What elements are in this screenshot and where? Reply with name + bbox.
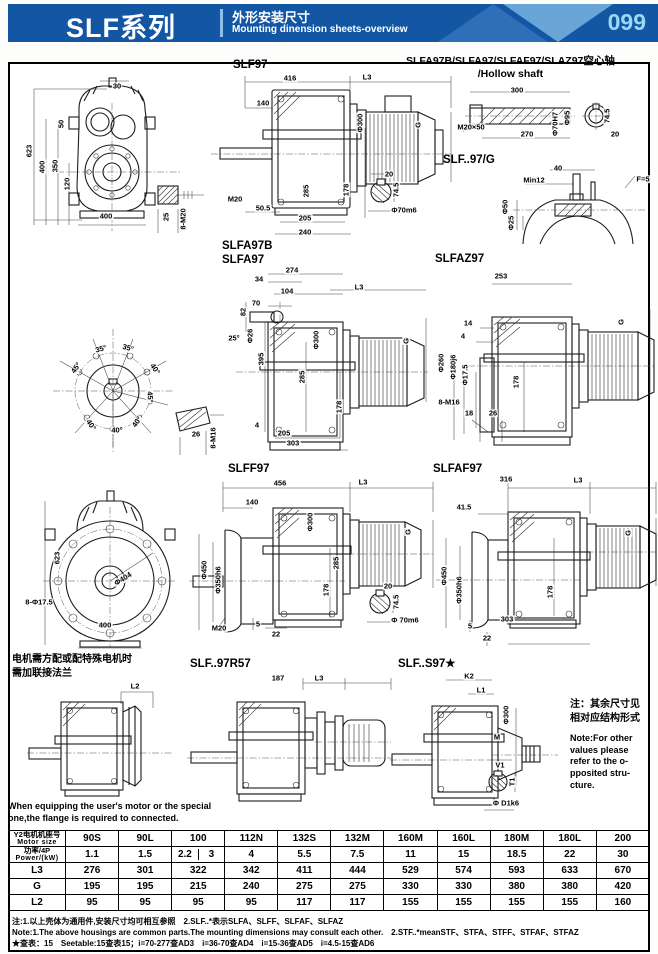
dim-label: 178 xyxy=(342,183,350,198)
row-header: L2 xyxy=(9,895,66,911)
table-cell: 160L xyxy=(437,831,490,847)
dim-label: G xyxy=(617,318,625,326)
dim-label: 623 xyxy=(53,551,61,566)
dim-label: L2 xyxy=(130,682,141,690)
drawing-flange-front-view: 6238-Φ17.5Φ404400 xyxy=(15,485,187,653)
dim-label: 400 xyxy=(99,212,114,220)
dim-label: Φ260 xyxy=(437,353,445,374)
dim-label: Φ25 xyxy=(507,215,515,232)
table-cell: 155 xyxy=(490,895,543,911)
table-cell: 276 xyxy=(66,863,119,879)
dim-label: 26 xyxy=(488,409,498,417)
dim-label: 40 xyxy=(553,164,563,172)
dim-label: T1 xyxy=(508,777,516,788)
table-cell: 160M xyxy=(384,831,437,847)
motor-note-cn: 电机需方配或配特殊电机时 需加联接法兰 xyxy=(12,653,187,680)
table-cell: 330 xyxy=(437,879,490,895)
dim-label: 270 xyxy=(520,130,535,138)
dim-label: 8-Φ17.5 xyxy=(24,598,53,606)
dim-label: 8-M16 xyxy=(437,398,460,406)
dim-label: 45° xyxy=(146,390,155,404)
table-cell: 380 xyxy=(490,879,543,895)
dim-label: 395 xyxy=(257,352,265,367)
table-cell: 112N xyxy=(225,831,278,847)
dim-label: K2 xyxy=(463,672,475,680)
dim-label: Φ300 xyxy=(312,330,320,351)
drawing-flange-note: L2 xyxy=(25,680,175,802)
dim-label: 8-M16 xyxy=(209,426,217,449)
dim-label: 400 xyxy=(98,621,113,629)
table-cell: 95 xyxy=(225,895,278,911)
table-cell: 1.5 xyxy=(119,847,172,863)
dim-label: L3 xyxy=(358,478,369,486)
row-header: G xyxy=(9,879,66,895)
table-row: Y2电机机座号Motor size90S90L100112N132S132M16… xyxy=(9,831,650,847)
table-cell: 301 xyxy=(119,863,172,879)
dim-label: 205 xyxy=(298,214,313,222)
dim-label: L3 xyxy=(573,476,584,484)
table-cell: 1.1 xyxy=(66,847,119,863)
dim-label: 205 xyxy=(277,429,292,437)
dim-label: 20 xyxy=(610,130,620,138)
dim-label: Φ95 xyxy=(563,110,571,127)
table-cell: 22 xyxy=(543,847,596,863)
dim-label: 4 xyxy=(460,332,466,340)
dim-label: Φ180j6 xyxy=(449,354,457,381)
series-title: SLF系列 xyxy=(66,6,176,42)
dimension-table: Y2电机机座号Motor size90S90L100112N132S132M16… xyxy=(8,830,650,911)
drawing-slfs97: K2L1Φ300MV1T1Φ D1k6 xyxy=(388,670,573,815)
table-cell: 11 xyxy=(384,847,437,863)
dim-label: 18 xyxy=(464,409,474,417)
dim-label: Φ70m6 xyxy=(390,206,417,214)
table-cell: 15 xyxy=(437,847,490,863)
table-cell: 18.5 xyxy=(490,847,543,863)
dim-label: Φ D1k6 xyxy=(492,799,520,807)
dim-label: M xyxy=(493,733,501,741)
table-cell: 420 xyxy=(596,879,649,895)
table-cell: 195 xyxy=(119,879,172,895)
dim-label: 456 xyxy=(273,479,288,487)
dim-label: 74.5 xyxy=(603,108,611,125)
table-cell: 155 xyxy=(437,895,490,911)
header-title-en: Mounting dinension sheets-overview xyxy=(232,24,408,35)
dim-label: 178 xyxy=(322,583,330,598)
dim-label: 74.5 xyxy=(392,182,400,199)
table-cell: 200 xyxy=(596,831,649,847)
table-cell: 444 xyxy=(331,863,384,879)
table-cell: 342 xyxy=(225,863,278,879)
page-number: 099 xyxy=(608,9,646,36)
table-cell: 7.5 xyxy=(331,847,384,863)
dim-label: 140 xyxy=(256,99,271,107)
table-cell: 240 xyxy=(225,879,278,895)
drawing-slf97g-cover: 40Min12F=5Φ50Φ25 xyxy=(495,158,658,248)
table-cell: 160 xyxy=(596,895,649,911)
dim-label: 178 xyxy=(335,400,343,415)
table-cell: 95 xyxy=(119,895,172,911)
dim-label: 25° xyxy=(227,334,240,342)
table-cell: 2.23 xyxy=(172,847,225,863)
dim-label: 5 xyxy=(255,620,261,628)
dim-label: 40° xyxy=(110,426,123,434)
table-cell: 95 xyxy=(172,895,225,911)
dim-label: G xyxy=(402,337,410,345)
dim-label: G xyxy=(624,529,632,537)
dim-label: 300 xyxy=(510,86,525,94)
dim-label: M20 xyxy=(211,624,228,632)
table-row: L3276301322342411444529574593633670 xyxy=(9,863,650,879)
dim-label: 303 xyxy=(286,439,301,447)
drawing-slfaz97: 253144Φ260Φ180j6Φ17.51788-M161826G xyxy=(432,262,658,462)
dim-label: M20×50 xyxy=(456,123,485,131)
table-cell: 5.5 xyxy=(278,847,331,863)
table-cell: 529 xyxy=(384,863,437,879)
table-cell: 132M xyxy=(331,831,384,847)
row-header: L3 xyxy=(9,863,66,879)
dim-label: 14 xyxy=(463,319,473,327)
dim-label: 120 xyxy=(63,177,71,192)
table-cell: 380 xyxy=(543,879,596,895)
dim-label: 4 xyxy=(254,421,260,429)
table-cell: 90S xyxy=(66,831,119,847)
row-header: 功率/4PPower/(kW) xyxy=(9,847,66,863)
other-sizes-note-en: Note:For other values please refer to th… xyxy=(570,733,654,791)
dim-label: 274 xyxy=(285,266,300,274)
table-cell: 100 xyxy=(172,831,225,847)
table-cell: 90L xyxy=(119,831,172,847)
dim-label: 30 xyxy=(112,82,122,90)
drawing-slfaf97: 316L341.5Φ450Φ350h6178303522G xyxy=(430,468,658,668)
drawing-slff97: 456L3140Φ300Φ450Φ350h6285178M20522G xyxy=(185,468,437,668)
dim-label: 623 xyxy=(25,144,33,159)
drawing-bolt-circle-angles: 35°35°45°40°45°40°40°40° xyxy=(35,325,185,467)
dim-label: 5 xyxy=(467,622,473,630)
dim-label: G xyxy=(404,528,412,536)
footnote-ratio: ★查表：15 Seetable:15查表15；i=70-277查AD3 i=36… xyxy=(12,938,648,949)
table-cell: 180L xyxy=(543,831,596,847)
table-cell: 330 xyxy=(384,879,437,895)
dim-label: V1 xyxy=(494,761,505,769)
dim-label: M20 xyxy=(227,195,244,203)
dim-label: 26 xyxy=(191,430,201,438)
drawing-hollow-shaft: 300M20×50270Φ70H7Φ9574.520 xyxy=(455,82,655,157)
dim-label: 400 xyxy=(38,160,46,175)
dim-label: Φ450 xyxy=(440,566,448,587)
dim-label: 187 xyxy=(271,674,286,682)
dim-label: 8-M20 xyxy=(179,207,187,230)
dim-label: 416 xyxy=(283,74,298,82)
dim-label: 22 xyxy=(482,634,492,642)
drawing-bolt-detail-m20: 258-M20 xyxy=(152,183,212,238)
table-cell: 670 xyxy=(596,863,649,879)
table-row: L295959595117117155155155155160 xyxy=(9,895,650,911)
dim-label: 50 xyxy=(57,119,65,129)
dim-label: 178 xyxy=(512,375,520,390)
dim-label: L3 xyxy=(314,674,325,682)
table-cell: 195 xyxy=(66,879,119,895)
dim-label: Φ 70m6 xyxy=(390,616,419,624)
table-cell: 4 xyxy=(225,847,278,863)
table-cell: 633 xyxy=(543,863,596,879)
dim-label: Φ450 xyxy=(200,560,208,581)
dim-label: 316 xyxy=(499,475,514,483)
table-cell: 180M xyxy=(490,831,543,847)
dim-label: Φ300 xyxy=(502,705,510,726)
dim-label: Φ70H7 xyxy=(551,111,559,137)
dim-label: 178 xyxy=(546,585,554,600)
table-cell: 30 xyxy=(596,847,649,863)
dim-label: 104 xyxy=(280,287,295,295)
row-header: Y2电机机座号Motor size xyxy=(9,831,66,847)
dim-label: L3 xyxy=(362,73,373,81)
table-cell: 322 xyxy=(172,863,225,879)
dim-label: L1 xyxy=(476,686,487,694)
table-row: G195195215240275275330330380380420 xyxy=(9,879,650,895)
dim-label: Φ350h6 xyxy=(214,565,222,594)
page-header: SLF系列 外形安装尺寸 Mounting dinension sheets-o… xyxy=(8,4,658,42)
table-cell: 155 xyxy=(384,895,437,911)
dim-label: Φ50 xyxy=(501,199,509,216)
drawing-slf97r57: 187L3 xyxy=(185,670,395,810)
dim-label: 140 xyxy=(245,498,260,506)
table-cell: 95 xyxy=(66,895,119,911)
dim-label: 22 xyxy=(271,630,281,638)
table-cell: 574 xyxy=(437,863,490,879)
dim-label: 50.5 xyxy=(255,204,272,212)
dim-label: 303 xyxy=(500,615,515,623)
other-sizes-note-cn: 注：其余尺寸见 相对应结构形式 xyxy=(570,698,654,725)
dim-label: Φ26 xyxy=(246,328,254,345)
dim-label: 285 xyxy=(332,556,340,571)
table-cell: 275 xyxy=(331,879,384,895)
catalog-page: SLF系列 外形安装尺寸 Mounting dinension sheets-o… xyxy=(0,0,658,954)
table-cell: 411 xyxy=(278,863,331,879)
dim-label: 25 xyxy=(162,212,170,222)
dim-label: Min12 xyxy=(522,176,545,184)
dim-label: Φ300 xyxy=(356,113,364,134)
dim-label: L3 xyxy=(354,283,365,291)
dim-label: Φ300 xyxy=(306,512,314,533)
table-cell: 117 xyxy=(331,895,384,911)
dim-label: G xyxy=(414,121,422,129)
table-cell: 117 xyxy=(278,895,331,911)
table-cell: 275 xyxy=(278,879,331,895)
dim-label: 285 xyxy=(298,370,306,385)
dim-label: Φ17.5 xyxy=(461,364,469,387)
table-cell: 132S xyxy=(278,831,331,847)
dim-label: F=5 xyxy=(635,175,650,183)
dim-label: 34 xyxy=(254,275,264,283)
table-cell: 215 xyxy=(172,879,225,895)
dim-label: 70 xyxy=(251,299,261,307)
footnotes: 注:1.以上壳体为通用件,安装尺寸均可相互参照 2.SLF..*表示SLFA、S… xyxy=(12,916,648,949)
dim-label: 350 xyxy=(51,159,59,174)
dim-label: 285 xyxy=(302,184,310,199)
drawing-bolt-detail-m16: 268-M16 xyxy=(172,403,227,463)
dim-label: 20 xyxy=(383,582,393,590)
dim-label: 74.5 xyxy=(392,594,400,611)
footnote-en: Note:1.The above housings are common par… xyxy=(12,927,648,938)
dim-label: 82 xyxy=(239,307,247,317)
table-row: 功率/4PPower/(kW)1.11.52.2345.57.5111518.5… xyxy=(9,847,650,863)
dim-label: 20 xyxy=(384,170,394,178)
table-cell: 155 xyxy=(543,895,596,911)
dim-label: 41.5 xyxy=(456,503,473,511)
dim-label: Φ350h6 xyxy=(455,575,463,604)
drawing-shaft-section-detail: 2074.5Φ70m6 xyxy=(360,165,435,220)
footnote-cn: 注:1.以上壳体为通用件,安装尺寸均可相互参照 2.SLF..*表示SLFA、S… xyxy=(12,916,648,927)
table-cell: 593 xyxy=(490,863,543,879)
drawing-shaft-section-detail: 2074.5Φ 70m6 xyxy=(360,575,440,635)
dim-label: 240 xyxy=(298,228,313,236)
dim-label: 253 xyxy=(494,272,509,280)
header-divider xyxy=(220,9,223,37)
